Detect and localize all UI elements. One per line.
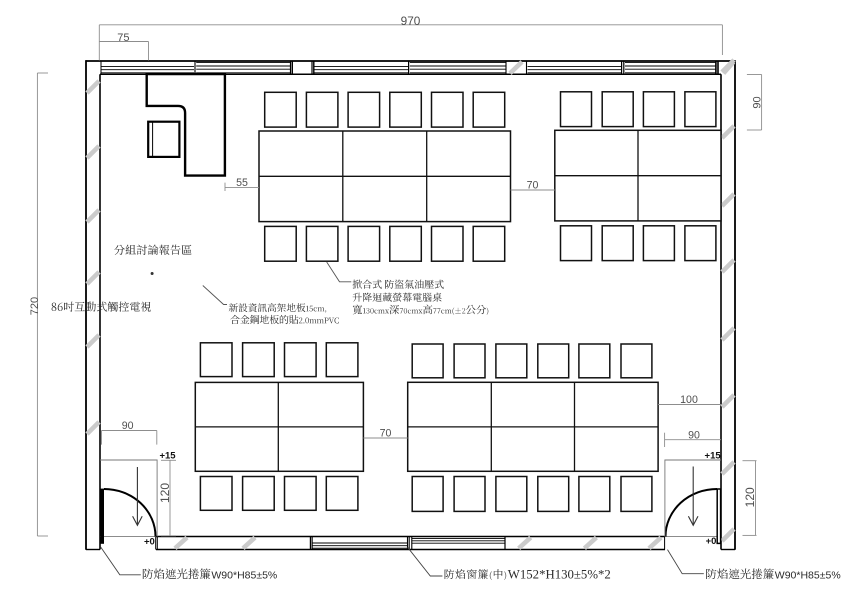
- svg-text:70: 70: [527, 180, 539, 192]
- svg-text:55: 55: [236, 177, 248, 189]
- svg-text:75: 75: [117, 32, 129, 44]
- svg-text:+15: +15: [159, 450, 176, 461]
- svg-text:70: 70: [380, 428, 392, 440]
- svg-text:90: 90: [122, 420, 134, 432]
- svg-text:+0: +0: [144, 536, 155, 547]
- svg-text:W90*H85±5%: W90*H85±5%: [211, 569, 277, 581]
- svg-text:+0: +0: [706, 536, 717, 547]
- svg-text:W90*H85±5%: W90*H85±5%: [775, 569, 841, 581]
- svg-text:W152*H130±5%*2: W152*H130±5%*2: [508, 567, 611, 581]
- svg-text:120: 120: [158, 483, 172, 503]
- svg-text:90: 90: [751, 96, 763, 108]
- svg-text:970: 970: [401, 14, 421, 28]
- svg-text:100: 100: [680, 394, 698, 406]
- svg-text:120: 120: [743, 487, 757, 507]
- svg-text:90: 90: [688, 429, 700, 441]
- svg-text:+15: +15: [705, 451, 722, 462]
- svg-text:720: 720: [29, 297, 41, 315]
